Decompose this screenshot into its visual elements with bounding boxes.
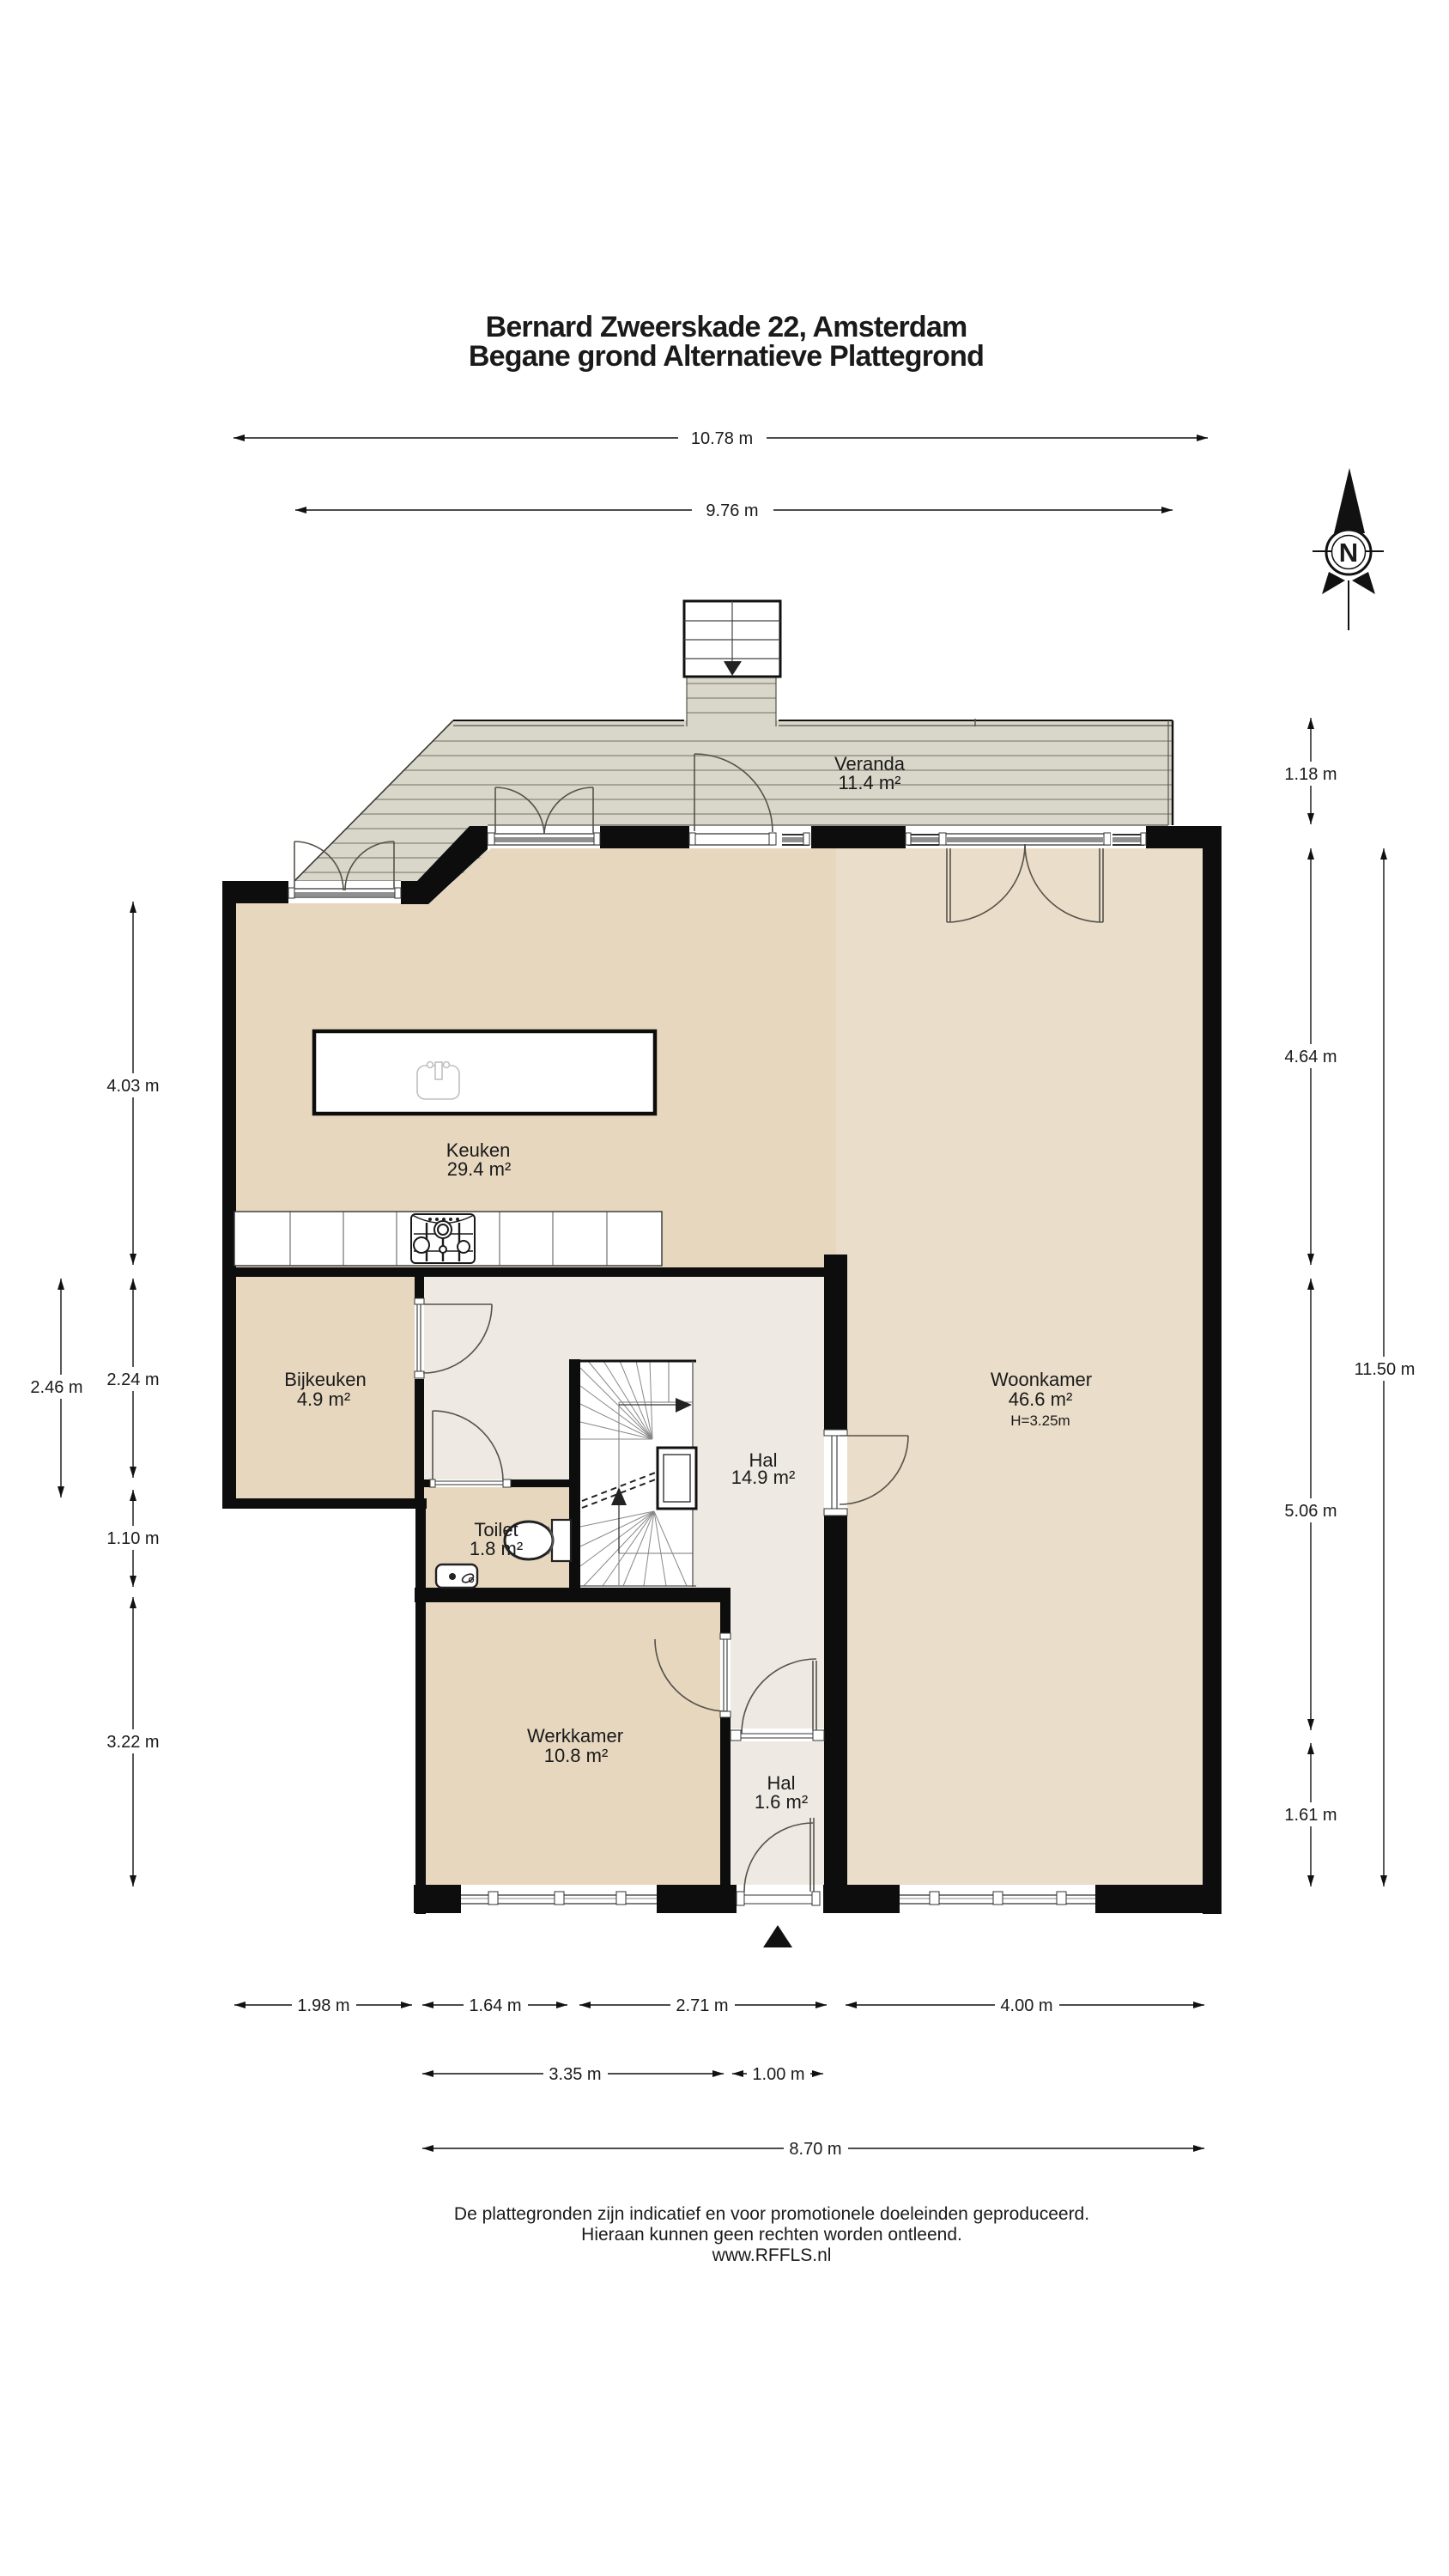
svg-text:2.46 m: 2.46 m [30, 1378, 82, 1397]
svg-text:Bijkeuken: Bijkeuken [284, 1369, 366, 1390]
svg-text:1.6 m²: 1.6 m² [755, 1791, 808, 1813]
svg-text:Bernard Zweerskade 22, Amsterd: Bernard Zweerskade 22, Amsterdam [486, 311, 967, 343]
svg-text:Hieraan kunnen geen rechten wo: Hieraan kunnen geen rechten worden ontle… [581, 2225, 962, 2245]
svg-text:11.4 m²: 11.4 m² [839, 772, 901, 793]
svg-text:4.03 m: 4.03 m [106, 1077, 159, 1096]
svg-text:H=3.25m: H=3.25m [1010, 1413, 1070, 1429]
svg-text:1.61 m: 1.61 m [1284, 1806, 1337, 1825]
svg-text:Begane grond Alternatieve Plat: Begane grond Alternatieve Plattegrond [469, 340, 984, 373]
svg-text:1.10 m: 1.10 m [106, 1529, 159, 1548]
svg-text:4.64 m: 4.64 m [1284, 1048, 1337, 1066]
svg-text:29.4 m²: 29.4 m² [447, 1158, 512, 1180]
svg-text:4.00 m: 4.00 m [1000, 1996, 1052, 2015]
svg-text:3.35 m: 3.35 m [549, 2065, 601, 2084]
svg-text:1.18 m: 1.18 m [1284, 765, 1337, 784]
svg-text:11.50 m: 11.50 m [1355, 1360, 1416, 1379]
svg-text:10.8 m²: 10.8 m² [544, 1745, 609, 1766]
svg-text:Werkkamer: Werkkamer [527, 1725, 623, 1747]
svg-text:N: N [1339, 538, 1358, 568]
svg-text:10.78 m: 10.78 m [691, 429, 753, 448]
svg-text:5.06 m: 5.06 m [1284, 1502, 1337, 1521]
svg-text:9.76 m: 9.76 m [706, 501, 758, 520]
svg-text:Woonkamer: Woonkamer [991, 1369, 1092, 1390]
svg-text:1.64 m: 1.64 m [469, 1996, 521, 2015]
svg-text:4.9 m²: 4.9 m² [297, 1388, 350, 1410]
svg-text:2.24 m: 2.24 m [106, 1370, 159, 1389]
svg-text:46.6 m²: 46.6 m² [1009, 1388, 1073, 1410]
svg-text:1.00 m: 1.00 m [752, 2065, 804, 2084]
svg-text:1.98 m: 1.98 m [297, 1996, 349, 2015]
svg-text:14.9 m²: 14.9 m² [731, 1467, 796, 1488]
svg-text:De plattegronden zijn indicati: De plattegronden zijn indicatief en voor… [454, 2204, 1089, 2224]
svg-text:1.8 m²: 1.8 m² [470, 1538, 523, 1559]
svg-text:8.70 m: 8.70 m [789, 2140, 841, 2159]
svg-text:www.RFFLS.nl: www.RFFLS.nl [712, 2245, 832, 2265]
svg-text:3.22 m: 3.22 m [106, 1733, 159, 1752]
svg-text:2.71 m: 2.71 m [676, 1996, 728, 2015]
